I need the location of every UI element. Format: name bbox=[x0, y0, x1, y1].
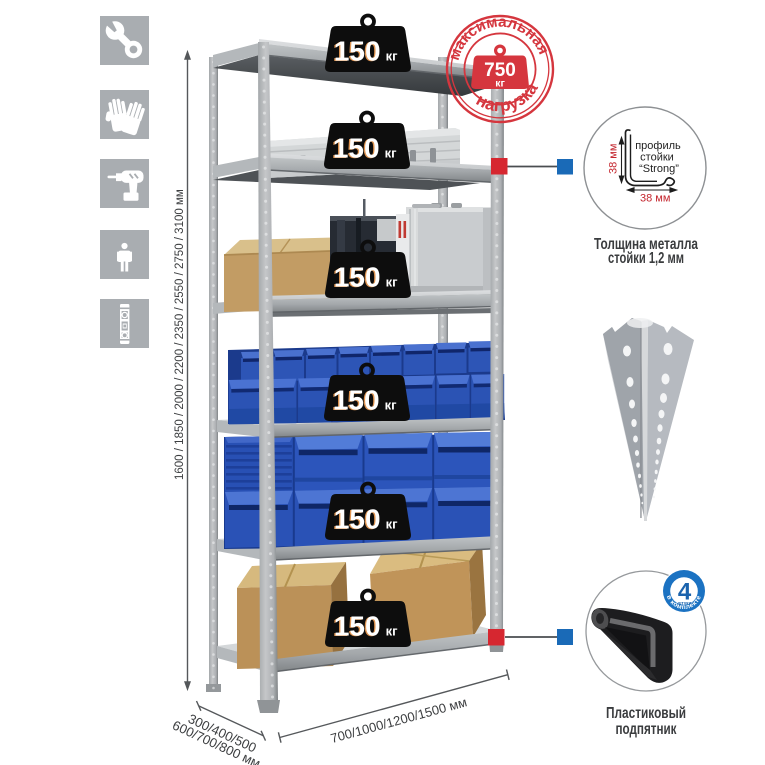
svg-text:Пластиковый: Пластиковый bbox=[606, 705, 686, 722]
svg-text:1600 / 1850 / 2000 / 2200 / 23: 1600 / 1850 / 2000 / 2200 / 2350 / 2550 … bbox=[174, 189, 186, 480]
svg-text:38 мм: 38 мм bbox=[640, 193, 670, 205]
svg-text:стойки 1,2 мм: стойки 1,2 мм bbox=[608, 250, 684, 267]
svg-text:профиль: профиль bbox=[635, 140, 681, 152]
svg-text:кг: кг bbox=[495, 78, 505, 90]
svg-text:подпятник: подпятник bbox=[616, 721, 677, 738]
svg-text:стойки: стойки bbox=[640, 152, 674, 164]
svg-text:“Strong”: “Strong” bbox=[639, 163, 679, 175]
svg-text:38 мм: 38 мм bbox=[608, 144, 620, 174]
